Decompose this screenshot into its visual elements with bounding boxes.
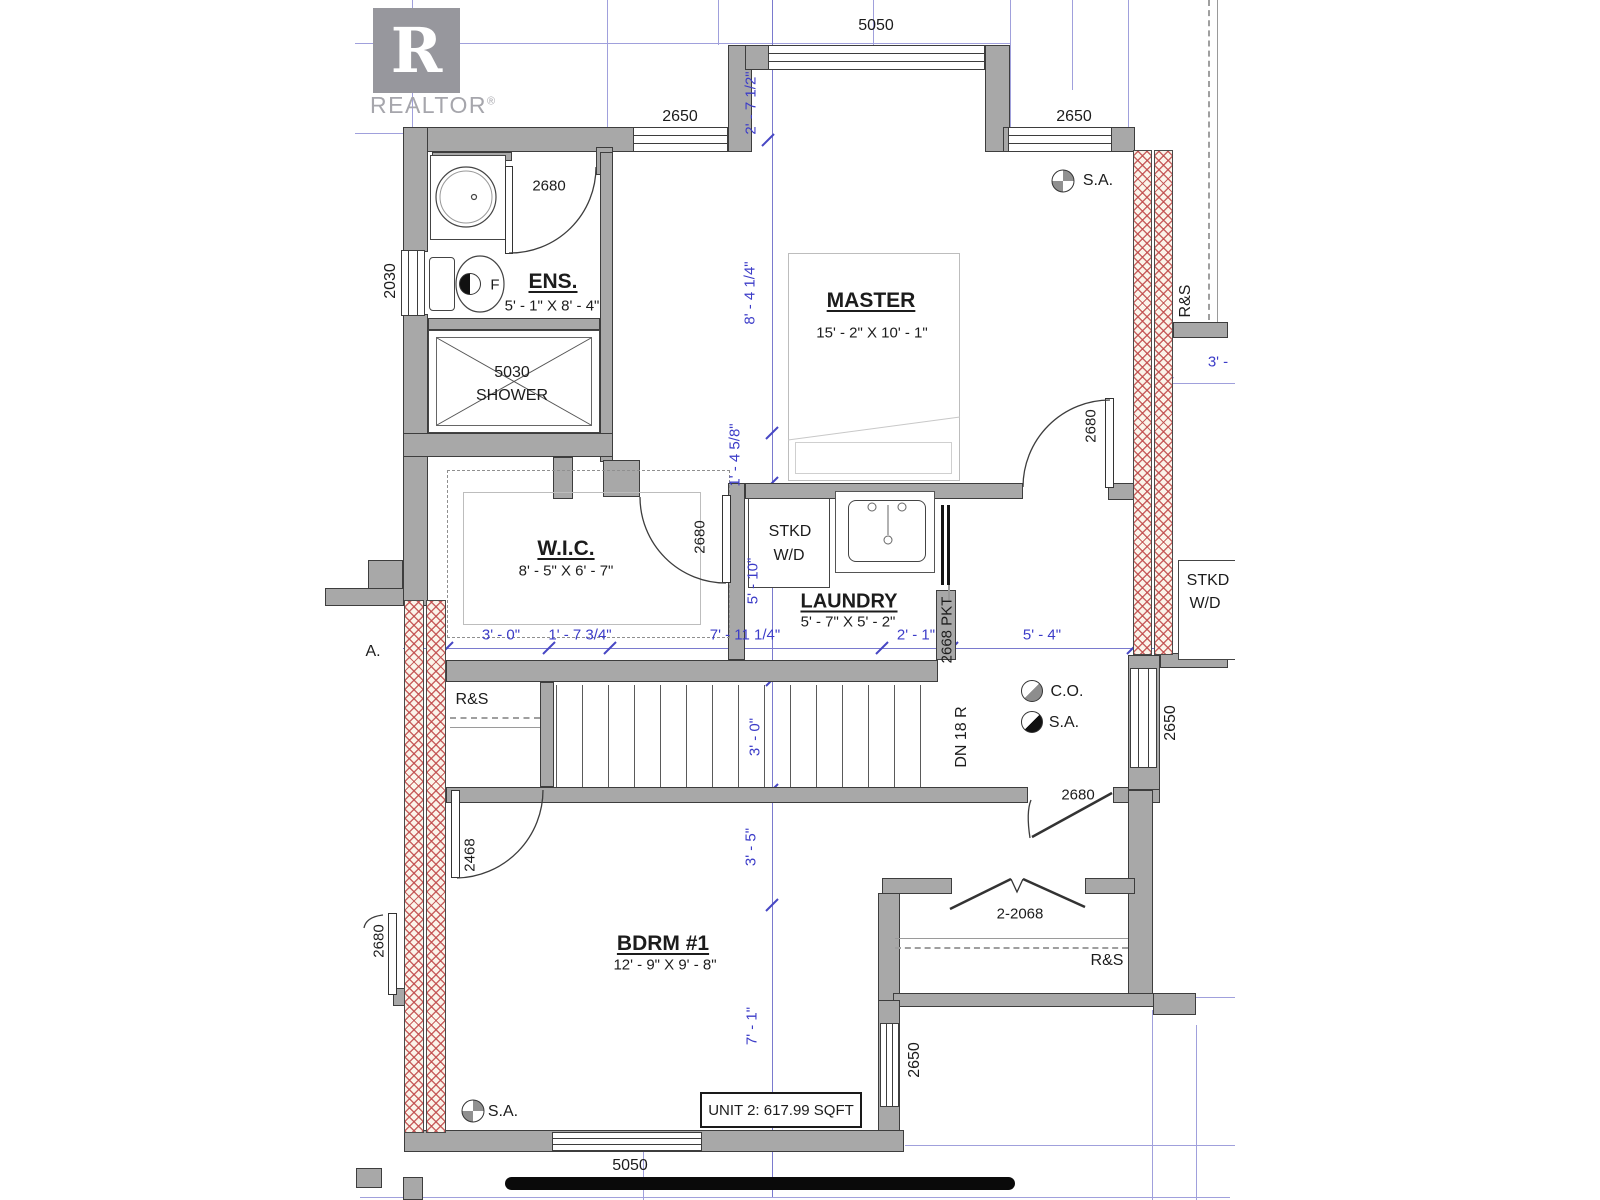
smoke-alarm-icon [1052,170,1075,193]
room-size-wic: 8' - 5" X 6' - 7" [519,563,614,580]
stacked-wd-label-2: W/D [773,547,804,565]
room-label-ens: ENS. [528,270,577,294]
rod-shelf-label: R&S [1091,952,1124,970]
toilet-fan-icon [459,273,481,295]
dim-stair-width: 3' - 0" [747,718,764,756]
floor-plan: R REALTOR® ENS. 5' - 1" X 8' - 4" MASTER… [0,0,1600,1200]
smoke-alarm-label: S.A. [1049,714,1079,732]
room-label-laundry: LAUNDRY [800,591,897,614]
toilet-fan-tag: F [490,277,499,294]
smoke-alarm-label: S.A. [1083,172,1113,190]
window-size-top-right: 2650 [1056,108,1092,126]
room-label-wic: W.I.C. [537,537,594,561]
window-size-bdrm: 2650 [906,1042,924,1078]
dim-bdrm-height: 7' - 1" [744,1007,761,1045]
neighbor-stkd-label-2: W/D [1189,595,1220,613]
window-size-bay: 5050 [858,17,894,35]
dim-chain-3: 7' - 11 1/4" [710,627,780,644]
door-size-ens: 2680 [532,178,565,195]
dim-neighbor-partial: 3' - [1208,354,1228,371]
room-size-ens: 5' - 1" X 8' - 4" [505,298,600,315]
dim-chain-4: 2' - 1" [897,627,935,644]
door-size-closet: 2-2068 [997,906,1044,923]
rod-shelf-label: R&S [456,691,489,709]
door-size-hall: 2680 [1061,787,1094,804]
dim-nook-height: 3' - 5" [743,828,760,866]
smoke-alarm-icon [462,1100,485,1123]
door-size-pocket: 2668 PKT [939,597,956,664]
unit-area-box: UNIT 2: 617.99 SQFT [700,1092,862,1128]
realtor-logo: R [373,8,460,93]
dim-bay-depth: 2' - 7 1/2" [743,71,760,134]
dim-chain-1: 3' - 0" [482,627,520,644]
rod-shelf-label-neighbor: R&S [1177,285,1195,318]
stairs-label: DN 18 R [953,706,971,767]
room-label-bdrm1: BDRM #1 [617,932,709,956]
room-size-bdrm1: 12' - 9" X 9' - 8" [613,957,716,974]
realtor-logo-monogram: R [391,20,443,82]
realtor-wordmark: REALTOR® [370,92,497,119]
smoke-alarm-label: S.A. [488,1103,518,1121]
door-size-neighbor: 2680 [371,924,388,957]
scale-bar [505,1177,1015,1190]
dim-master-lower: 1' - 4 5/8" [727,423,744,486]
room-size-laundry: 5' - 7" X 5' - 2" [801,614,896,631]
door-size-wic: 2680 [692,520,709,553]
dim-master-upper: 8' - 4 1/4" [742,261,759,324]
neighbor-stkd-label-1: STKD [1187,572,1230,590]
window-size-top-left: 2650 [662,108,698,126]
shower-label: SHOWER [476,387,548,405]
dim-chain-2: 1' - 7 3/4" [548,627,611,644]
carbon-monoxide-icon [1021,680,1043,702]
room-label-master: MASTER [827,289,916,313]
neighbor-partial-label: A. [365,643,380,661]
unit-area-label: UNIT 2: 617.99 SQFT [708,1102,854,1119]
room-size-master: 15' - 2" X 10' - 1" [816,325,927,342]
window-size-hall: 2650 [1162,705,1180,741]
dim-chain-5: 5' - 4" [1023,627,1061,644]
door-size-bdrm1: 2468 [462,838,479,871]
window-size-bdrm-bottom: 5050 [612,1157,648,1175]
stacked-wd-label-1: STKD [769,523,812,541]
door-size-master: 2680 [1083,409,1100,442]
dim-laundry-height: 5' - 10" [745,558,762,605]
registered-mark: ® [487,95,497,107]
smoke-alarm-icon [1021,711,1043,733]
window-size-ens: 2030 [382,263,400,299]
shower-code: 5030 [494,364,530,382]
co-label: C.O. [1051,683,1084,701]
